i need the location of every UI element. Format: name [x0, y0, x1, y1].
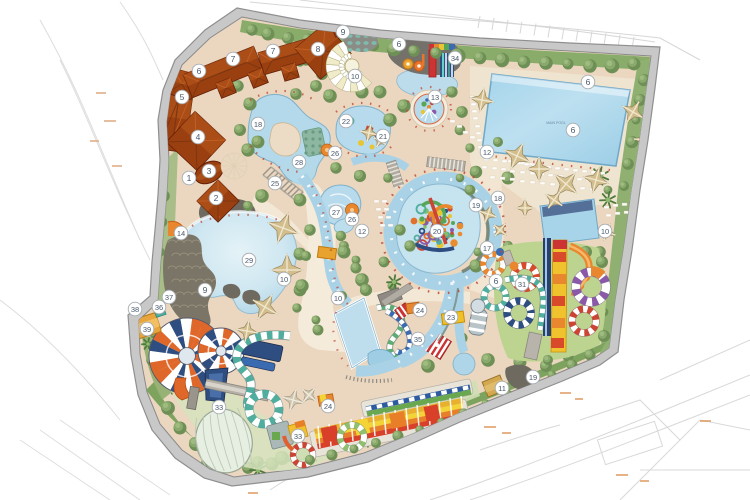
svg-text:7: 7 — [271, 46, 276, 56]
svg-text:11: 11 — [498, 384, 506, 393]
svg-text:18: 18 — [494, 194, 502, 203]
svg-text:6: 6 — [586, 77, 591, 87]
svg-text:18: 18 — [254, 120, 262, 129]
svg-text:27: 27 — [332, 208, 340, 217]
svg-text:19: 19 — [529, 373, 537, 382]
svg-text:26: 26 — [331, 149, 339, 158]
svg-text:10: 10 — [601, 227, 609, 236]
svg-text:12: 12 — [358, 227, 366, 236]
svg-text:7: 7 — [231, 54, 236, 64]
svg-text:3: 3 — [207, 166, 212, 176]
svg-text:10: 10 — [334, 294, 342, 303]
svg-text:35: 35 — [414, 335, 422, 344]
svg-text:22: 22 — [342, 117, 350, 126]
svg-text:23: 23 — [447, 313, 455, 322]
svg-text:12: 12 — [483, 148, 491, 157]
svg-text:36: 36 — [155, 303, 163, 312]
svg-text:6: 6 — [571, 125, 576, 135]
svg-text:24: 24 — [324, 402, 332, 411]
svg-text:9: 9 — [341, 27, 346, 37]
svg-text:MAIN POOL: MAIN POOL — [546, 121, 566, 125]
svg-text:10: 10 — [351, 72, 359, 81]
svg-text:4: 4 — [196, 132, 201, 142]
svg-text:21: 21 — [379, 132, 387, 141]
svg-text:31: 31 — [518, 280, 526, 289]
svg-text:6: 6 — [494, 276, 499, 286]
svg-text:28: 28 — [295, 158, 303, 167]
svg-text:38: 38 — [131, 305, 139, 314]
svg-text:6: 6 — [197, 66, 202, 76]
svg-text:19: 19 — [472, 201, 480, 210]
svg-text:6: 6 — [397, 39, 402, 49]
svg-text:29: 29 — [245, 256, 253, 265]
svg-text:25: 25 — [271, 179, 279, 188]
svg-text:20: 20 — [433, 227, 441, 236]
svg-text:33: 33 — [215, 403, 223, 412]
svg-text:13: 13 — [431, 93, 439, 102]
svg-text:2: 2 — [214, 193, 219, 203]
svg-text:34: 34 — [451, 54, 459, 63]
svg-text:8: 8 — [316, 44, 321, 54]
svg-text:24: 24 — [416, 306, 424, 315]
svg-text:17: 17 — [483, 244, 491, 253]
svg-text:33: 33 — [294, 432, 302, 441]
svg-text:10: 10 — [280, 275, 288, 284]
svg-text:39: 39 — [143, 325, 151, 334]
svg-text:26: 26 — [348, 215, 356, 224]
svg-text:9: 9 — [203, 285, 208, 295]
svg-text:5: 5 — [180, 92, 185, 102]
svg-text:14: 14 — [177, 229, 185, 238]
svg-text:37: 37 — [165, 293, 173, 302]
svg-text:1: 1 — [187, 173, 192, 183]
